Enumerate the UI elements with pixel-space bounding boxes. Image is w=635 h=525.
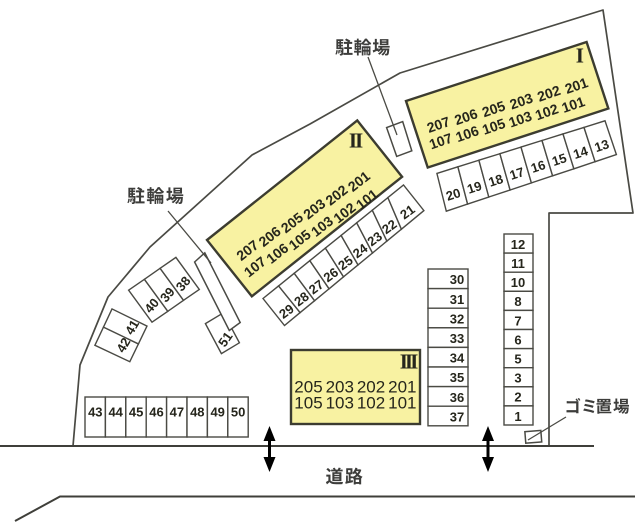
svg-text:33: 33 — [450, 331, 464, 346]
svg-text:45: 45 — [129, 405, 143, 420]
svg-text:34: 34 — [450, 351, 465, 366]
svg-text:II: II — [349, 129, 363, 153]
svg-text:32: 32 — [450, 311, 464, 326]
svg-text:43: 43 — [88, 405, 102, 420]
svg-text:8: 8 — [514, 294, 521, 309]
svg-text:31: 31 — [450, 292, 464, 307]
svg-text:I: I — [576, 44, 584, 68]
svg-text:30: 30 — [450, 272, 464, 287]
svg-text:12: 12 — [511, 237, 525, 252]
svg-text:46: 46 — [149, 405, 163, 420]
svg-text:1: 1 — [514, 409, 521, 424]
svg-text:49: 49 — [210, 405, 224, 420]
svg-text:36: 36 — [450, 390, 464, 405]
svg-text:105 103 102 101: 105 103 102 101 — [294, 393, 416, 412]
svg-text:44: 44 — [108, 405, 123, 420]
svg-text:11: 11 — [511, 256, 525, 271]
svg-text:2: 2 — [514, 390, 521, 405]
svg-text:47: 47 — [170, 405, 184, 420]
svg-text:48: 48 — [190, 405, 204, 420]
svg-text:37: 37 — [450, 409, 464, 424]
svg-text:50: 50 — [231, 405, 245, 420]
svg-text:6: 6 — [514, 332, 521, 347]
svg-text:35: 35 — [450, 370, 464, 385]
svg-text:10: 10 — [511, 275, 525, 290]
svg-text:3: 3 — [514, 371, 521, 386]
svg-text:7: 7 — [514, 313, 521, 328]
svg-text:5: 5 — [514, 352, 521, 367]
